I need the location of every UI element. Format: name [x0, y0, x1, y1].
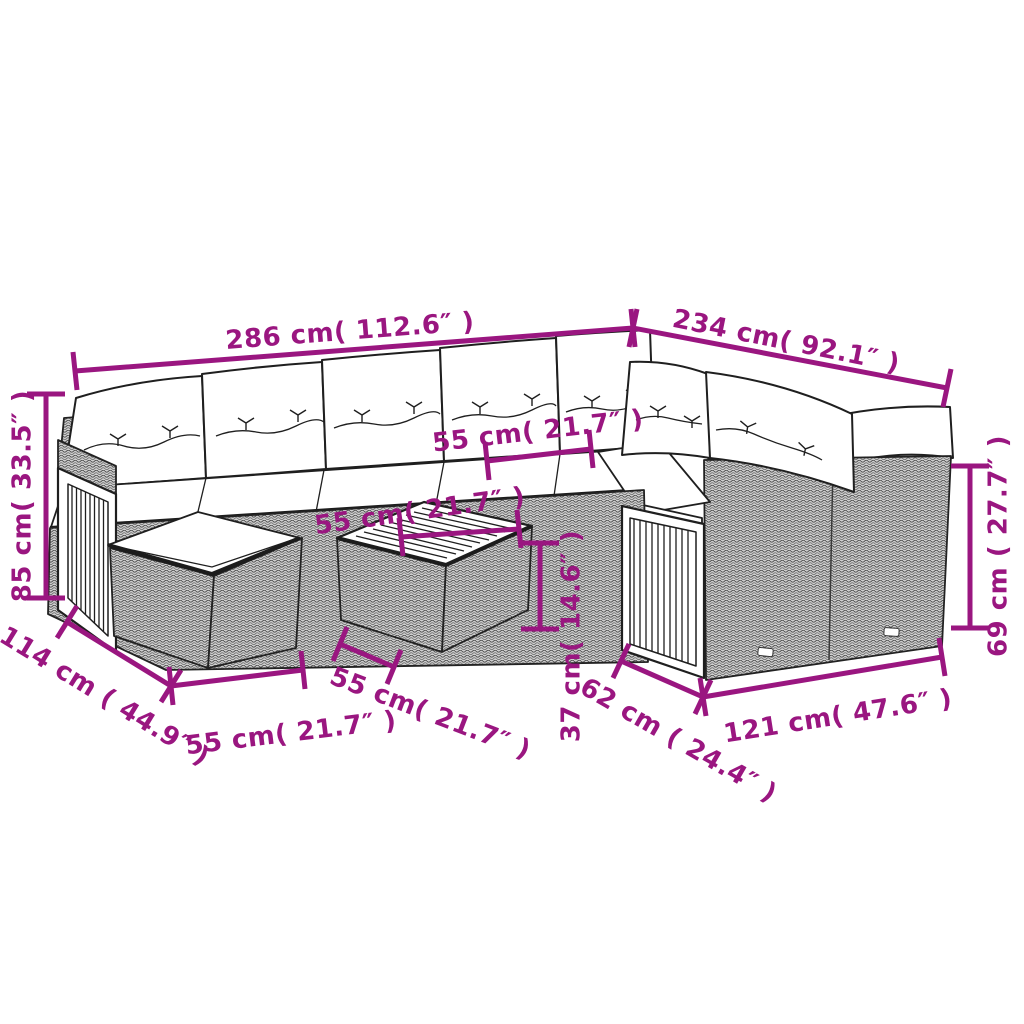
rattan-tag — [758, 647, 774, 657]
end-unit-wood-panel — [622, 506, 704, 678]
ottoman — [108, 512, 302, 668]
dim-arm-height: 69 cm ( 27.7″ ) — [951, 435, 1014, 657]
back-pillow — [322, 350, 444, 469]
dim-back-height-label: 85 cm( 33.5″ ) — [8, 390, 38, 602]
product-dimension-diagram: 286 cm( 112.6″ ) 234 cm( 92.1″ ) 85 cm( … — [0, 0, 1024, 1024]
back-pillow — [202, 362, 326, 478]
end-unit-rattan-back — [704, 456, 951, 680]
dim-arm-height-label: 69 cm ( 27.7″ ) — [984, 435, 1014, 657]
end-unit-back — [704, 456, 951, 680]
dim-table-height-label: 37 cm( 14.6″ ) — [557, 530, 587, 742]
rattan-tag — [884, 628, 900, 637]
dim-end-unit-width-label: 121 cm( 47.6″ ) — [722, 684, 955, 750]
dim-ottoman-width-label: 55 cm( 21.7″ ) — [184, 706, 398, 762]
